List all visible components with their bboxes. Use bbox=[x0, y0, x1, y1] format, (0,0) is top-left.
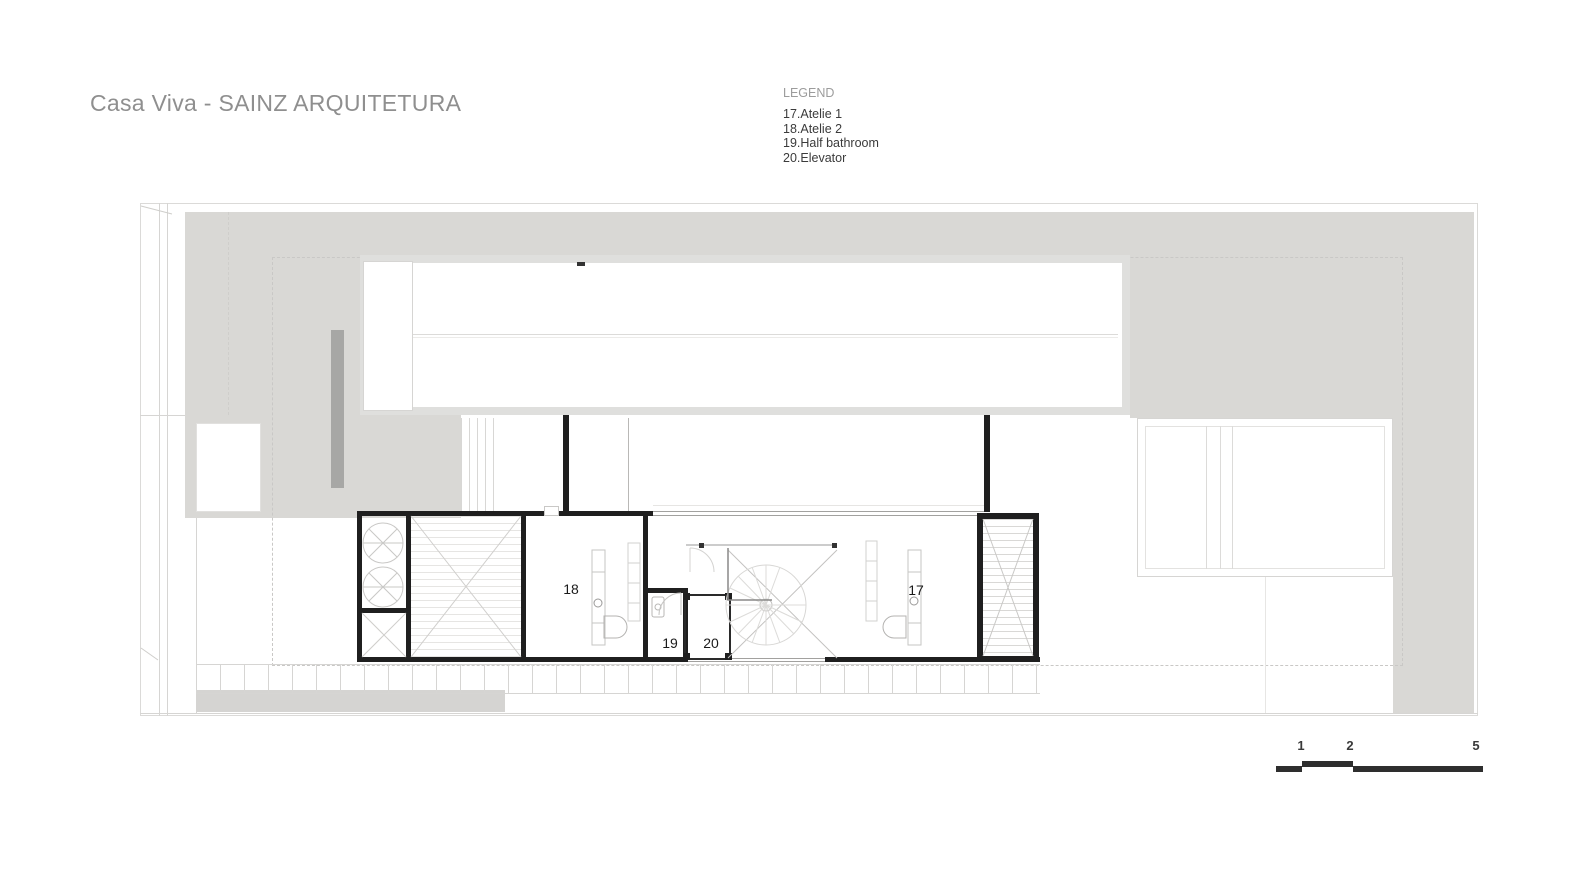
vent-fan-icon bbox=[363, 523, 403, 607]
spiral-stair bbox=[726, 548, 806, 645]
page-title: Casa Viva - SAINZ ARQUITETURA bbox=[90, 90, 461, 117]
scale-bar-segment-1 bbox=[1276, 766, 1302, 772]
room-label-atelie2: 18 bbox=[563, 581, 579, 597]
scale-label-1: 1 bbox=[1297, 738, 1304, 753]
legend-item-atelie1: 17.Atelie 1 bbox=[783, 107, 879, 122]
room-label-elevator: 20 bbox=[703, 635, 719, 651]
site-bevel-lines bbox=[141, 206, 172, 660]
legend-title: LEGEND bbox=[783, 86, 879, 100]
scale-bar-segment-3 bbox=[1353, 766, 1483, 772]
legend: LEGEND 17.Atelie 1 18.Atelie 2 19.Half b… bbox=[783, 86, 879, 165]
atelie2-furniture bbox=[592, 543, 640, 645]
room-label-atelie1: 17 bbox=[908, 582, 924, 598]
room-label-half-bathroom: 19 bbox=[662, 635, 678, 651]
scale-label-5: 5 bbox=[1472, 738, 1479, 753]
scale-bar-segment-2 bbox=[1302, 761, 1353, 767]
legend-item-elevator: 20.Elevator bbox=[783, 151, 879, 166]
bathroom-fixtures bbox=[652, 593, 681, 617]
deck-room-x bbox=[411, 516, 521, 657]
scale-label-2: 2 bbox=[1346, 738, 1353, 753]
legend-item-atelie2: 18.Atelie 2 bbox=[783, 122, 879, 137]
stair-box-x bbox=[983, 519, 1033, 656]
closet-x-marks bbox=[362, 613, 406, 657]
floor-plan-sheet: Casa Viva - SAINZ ARQUITETURA LEGEND 17.… bbox=[0, 0, 1582, 890]
legend-item-half-bathroom: 19.Half bathroom bbox=[783, 136, 879, 151]
corridor-door-arc bbox=[690, 548, 714, 572]
plan-linework bbox=[140, 200, 1480, 730]
